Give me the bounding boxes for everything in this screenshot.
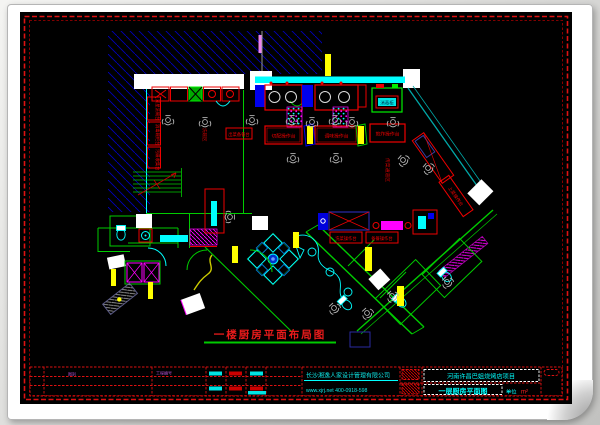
drawing-title-text: 一楼厨房平面布局图 — [214, 328, 327, 341]
sheet-name: 一层厨房平面图 — [439, 387, 488, 396]
label-wash1: 双星洗碗台 — [154, 99, 161, 120]
project-name: 河南许昌巴姐烧烤店项目 — [447, 373, 515, 381]
cad-drawing: 双星洗碗台 消毒碗柜台 污碟收集台 洗碗区 消毒柜 — [0, 0, 600, 425]
label-wash2: 消毒碗柜台 — [154, 124, 161, 145]
label-prep2: 备餐操作台 — [371, 235, 392, 242]
label-mid1: 切配操作台 — [272, 133, 296, 140]
label-mid3: 煎炸操作台 — [376, 131, 400, 138]
note-mid: 工程编号 — [156, 370, 172, 376]
label-outlet: 出菜备餐台 — [228, 131, 249, 138]
unit-value: m² — [521, 390, 528, 396]
company-contact: www.xjrj.net 400-0918-598 — [306, 388, 368, 394]
label-washzone: 洗碗区 — [201, 128, 208, 142]
label-sterilizer: 消毒柜 — [380, 100, 394, 107]
note-left: 图别 — [68, 371, 76, 377]
label-prep1: 洗菜操作台 — [335, 235, 356, 242]
unit-label: 单位 — [506, 388, 517, 396]
label-corridor: 传菜通道区 — [384, 158, 391, 182]
label-mid2: 调味操作台 — [325, 133, 349, 140]
viewer-frame: 双星洗碗台 消毒碗柜台 污碟收集台 洗碗区 消毒柜 — [0, 0, 600, 425]
company-name: 长沙湘逸人家设计管理有限公司 — [306, 372, 390, 380]
label-wash3: 污碟收集台 — [154, 149, 161, 170]
